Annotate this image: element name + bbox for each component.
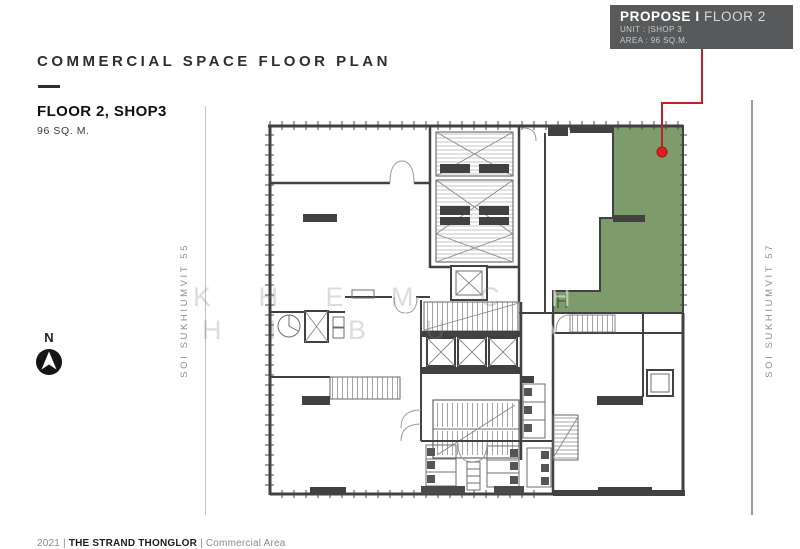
callout-dot [657,147,667,157]
north-label: N [44,330,53,345]
brochure-page: { "header": { "title": "COMMERCIAL SPACE… [0,0,800,549]
escalator-core [430,126,519,302]
top-left-rooms [270,161,430,222]
floor-plan: N [0,0,800,549]
mid-left-rooms [270,290,430,441]
north-arrow-icon: N [36,330,62,375]
elevator-bank [422,302,522,460]
